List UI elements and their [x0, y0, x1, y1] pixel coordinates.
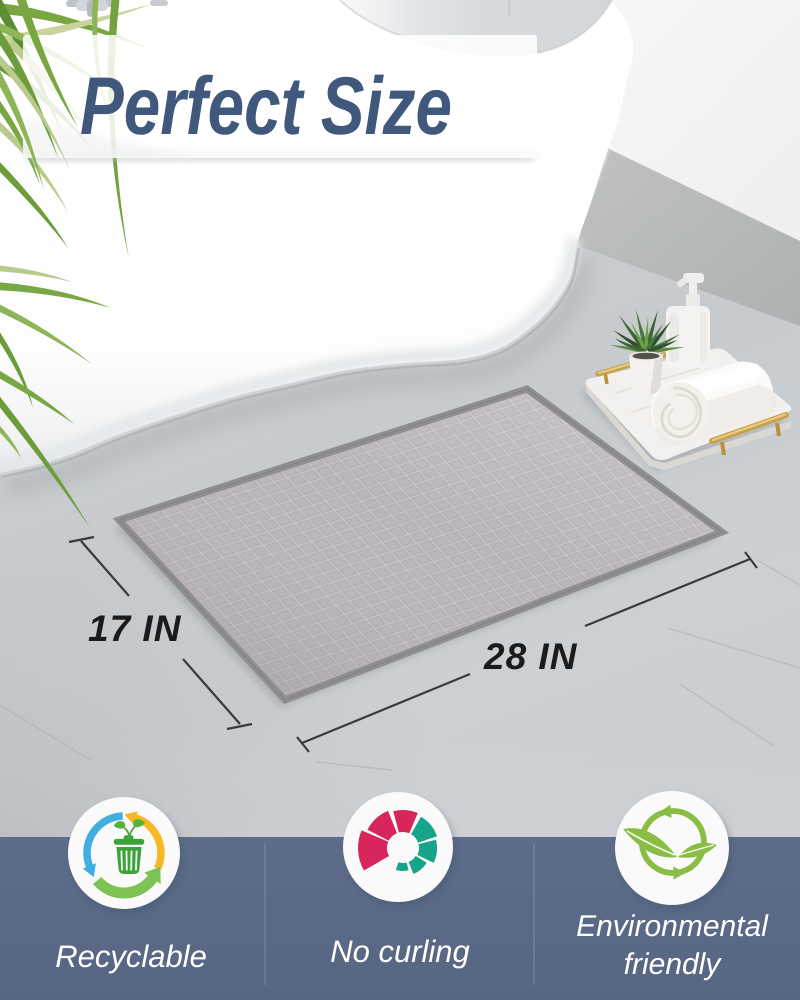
svg-text:28 IN: 28 IN: [483, 636, 578, 677]
svg-text:Perfect Size: Perfect Size: [80, 61, 452, 152]
svg-text:Environmental: Environmental: [576, 910, 769, 943]
svg-text:friendly: friendly: [624, 948, 723, 981]
svg-text:No curling: No curling: [330, 934, 470, 969]
svg-text:17 IN: 17 IN: [88, 608, 182, 649]
svg-text:Recyclable: Recyclable: [55, 939, 207, 974]
